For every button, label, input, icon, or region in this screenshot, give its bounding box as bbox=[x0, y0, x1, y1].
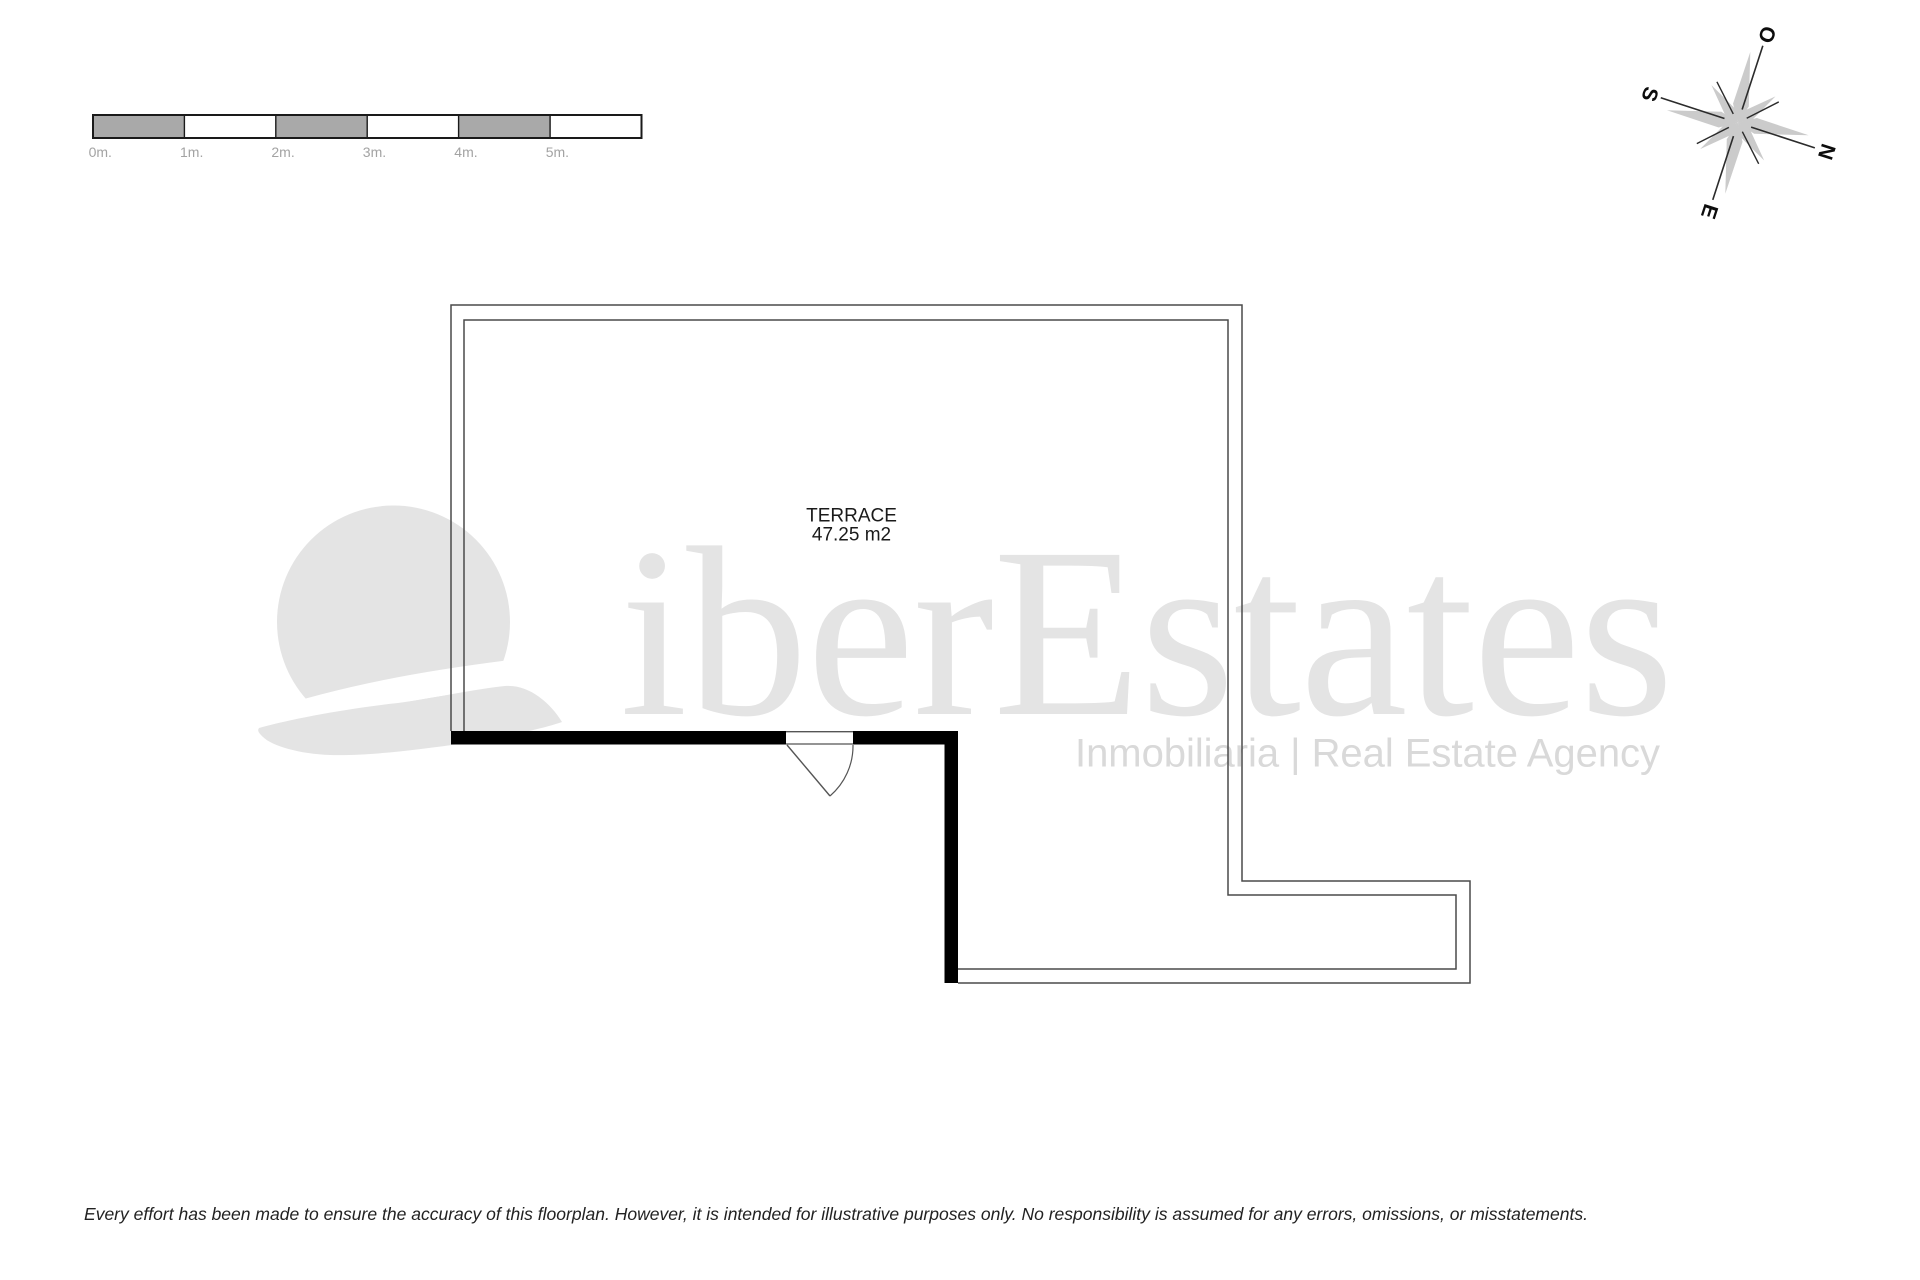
svg-text:2m.: 2m. bbox=[271, 144, 294, 160]
svg-text:Inmobiliaria | Real Estate Age: Inmobiliaria | Real Estate Agency bbox=[1075, 732, 1660, 776]
svg-text:47.25 m2: 47.25 m2 bbox=[812, 525, 891, 546]
svg-text:Every effort has been made to: Every effort has been made to ensure the… bbox=[84, 1204, 1588, 1224]
svg-text:1m.: 1m. bbox=[180, 144, 203, 160]
svg-text:0m.: 0m. bbox=[89, 144, 112, 160]
svg-text:5m.: 5m. bbox=[546, 144, 569, 160]
svg-text:4m.: 4m. bbox=[454, 144, 477, 160]
svg-text:3m.: 3m. bbox=[363, 144, 386, 160]
svg-text:iberEstates: iberEstates bbox=[620, 497, 1674, 767]
svg-text:TERRACE: TERRACE bbox=[806, 506, 897, 527]
